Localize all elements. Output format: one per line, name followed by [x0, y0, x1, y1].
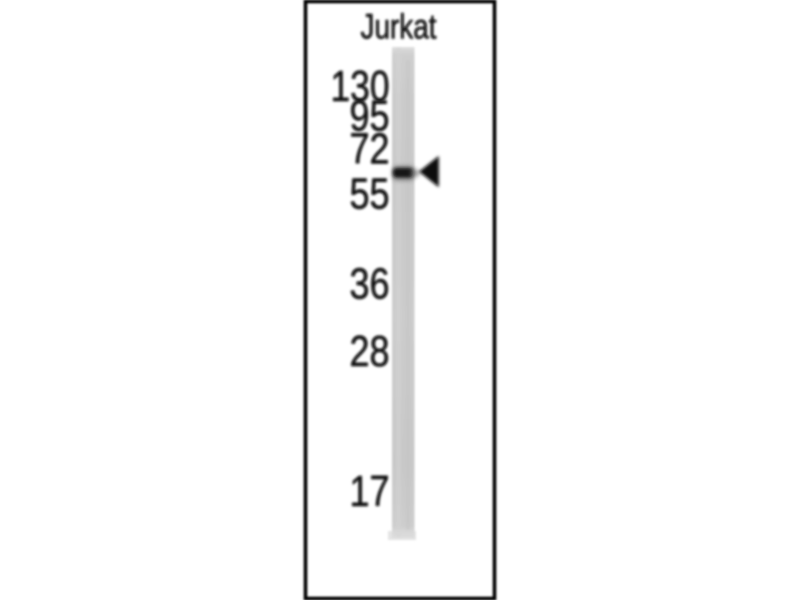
svg-text:28: 28 — [350, 327, 390, 376]
svg-text:55: 55 — [350, 170, 390, 219]
svg-text:17: 17 — [350, 467, 390, 516]
svg-text:36: 36 — [350, 260, 390, 309]
svg-text:Jurkat: Jurkat — [361, 8, 437, 47]
svg-text:72: 72 — [350, 125, 390, 174]
